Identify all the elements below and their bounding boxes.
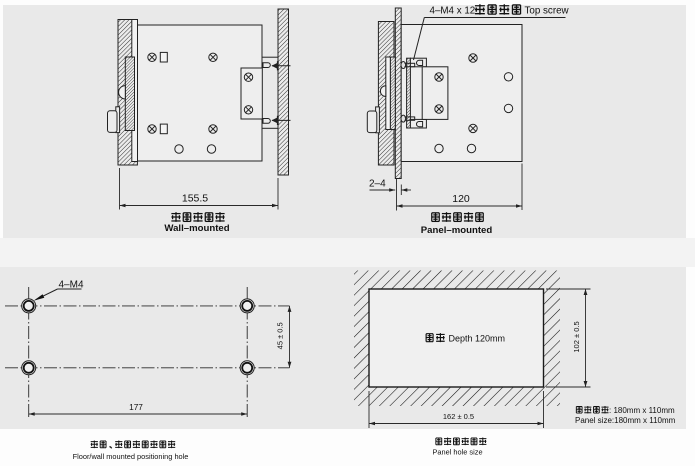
svg-text:102 ± 0.5: 102 ± 0.5: [572, 321, 581, 352]
svg-text:Wall–mounted: Wall–mounted: [164, 223, 229, 234]
svg-text:Depth 120mm: Depth 120mm: [449, 334, 506, 344]
svg-text:120: 120: [452, 193, 470, 205]
svg-text:Floor/wall mounted positioning: Floor/wall mounted positioning hole: [73, 452, 189, 461]
svg-text:2–4: 2–4: [369, 178, 386, 189]
svg-text:Top screw: Top screw: [525, 6, 570, 17]
svg-text:4–M4 x 12: 4–M4 x 12: [430, 6, 476, 17]
svg-text:Panel–mounted: Panel–mounted: [421, 225, 493, 236]
svg-text:177: 177: [129, 402, 143, 412]
svg-text:45 ± 0.5: 45 ± 0.5: [276, 322, 285, 349]
svg-text:Panel hole size: Panel hole size: [432, 448, 482, 457]
svg-text:155.5: 155.5: [182, 193, 208, 205]
svg-text:Panel size:180mm x 110mm: Panel size:180mm x 110mm: [575, 416, 676, 425]
svg-text:162 ± 0.5: 162 ± 0.5: [443, 412, 474, 421]
svg-text:: 180mm x 110mm: : 180mm x 110mm: [609, 406, 675, 415]
